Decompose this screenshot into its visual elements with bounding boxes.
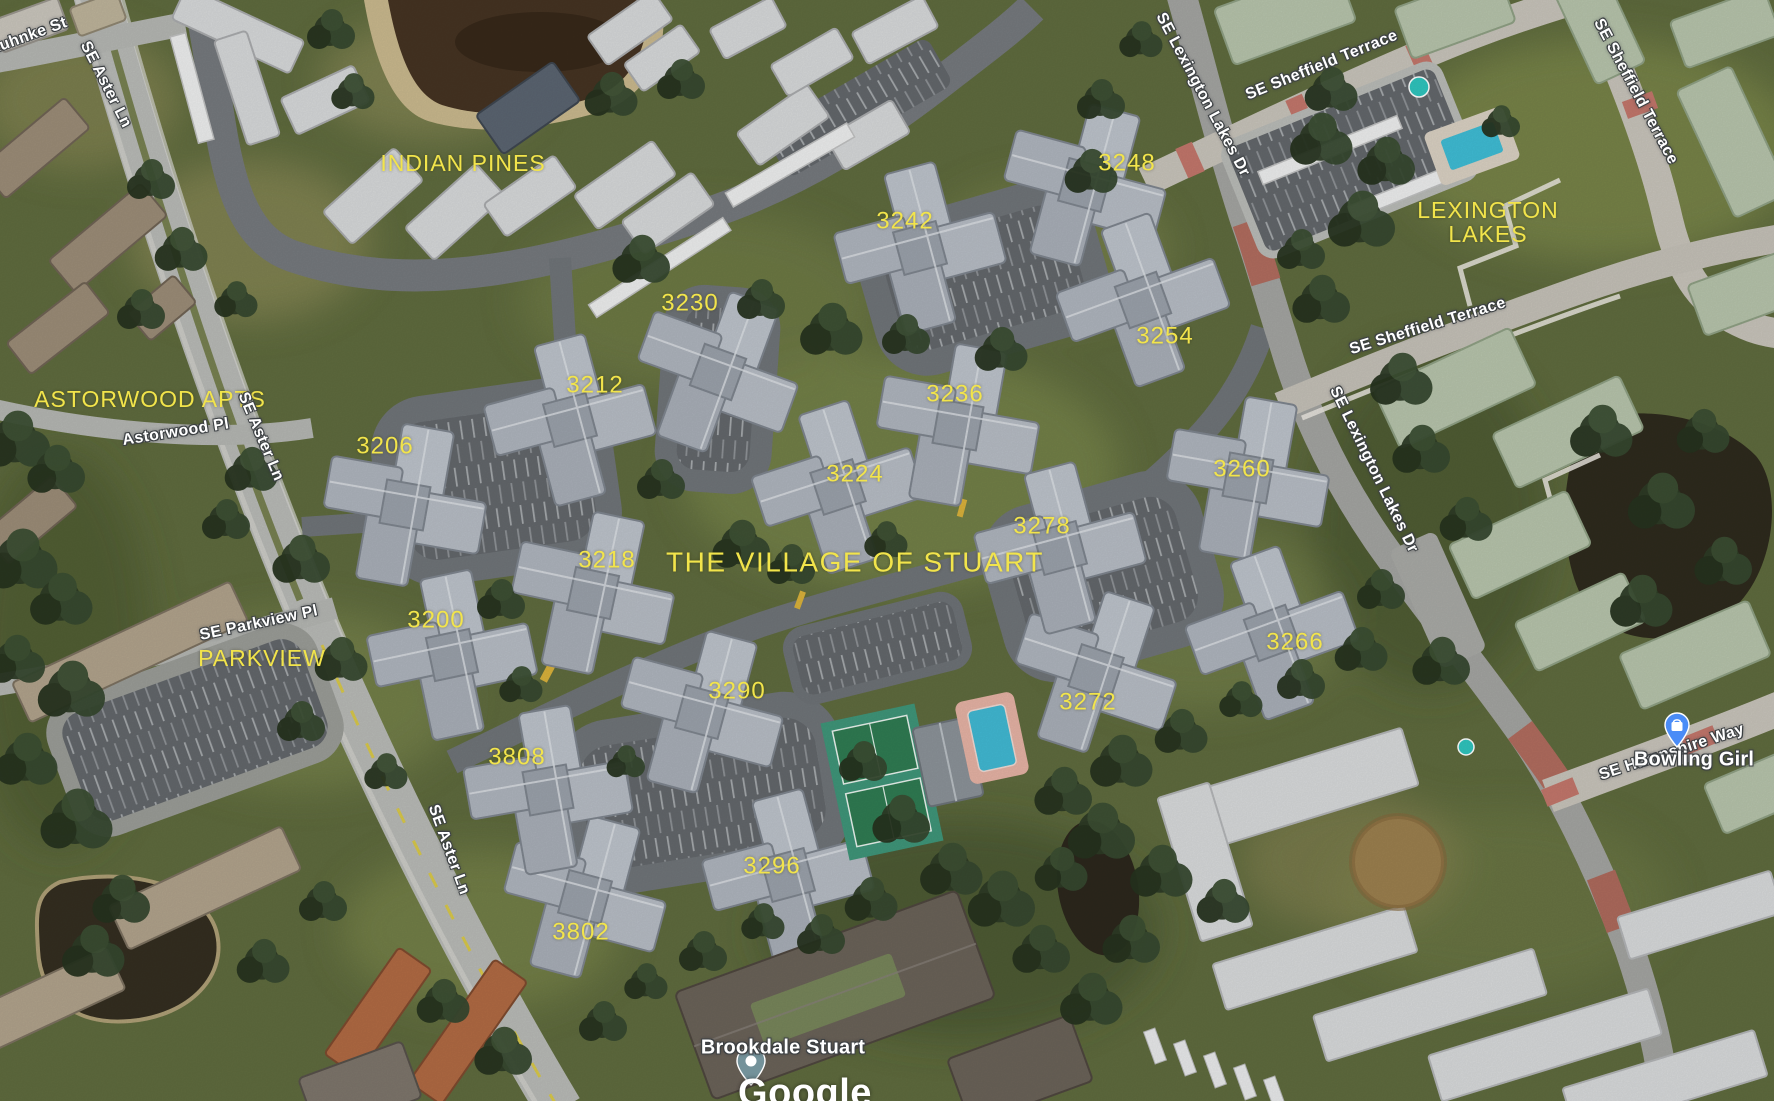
poi-label-brookdale-stuart[interactable]: Brookdale Stuart <box>701 1038 865 1059</box>
google-logo[interactable]: Google <box>738 1074 872 1101</box>
satellite-map[interactable]: INDIAN PINES ASTORWOOD APTS PARKVIEW THE… <box>0 0 1774 1101</box>
satellite-imagery <box>0 0 1774 1101</box>
poi-label-bowling-girl[interactable]: Bowling Girl <box>1634 750 1754 771</box>
bowling-girl-shopping-pin-icon[interactable] <box>1664 712 1690 748</box>
